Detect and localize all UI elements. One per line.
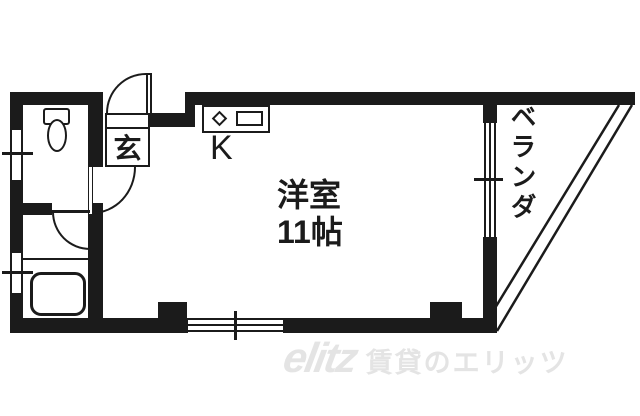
watermark: elitz 賃貸のエリッツ (284, 334, 569, 382)
watermark-logo: elitz (280, 334, 360, 382)
floorplan: 玄 K 洋室 11帖 ベランダ elitz 賃貸のエリッツ (0, 0, 640, 416)
watermark-text: 賃貸のエリッツ (366, 341, 569, 380)
